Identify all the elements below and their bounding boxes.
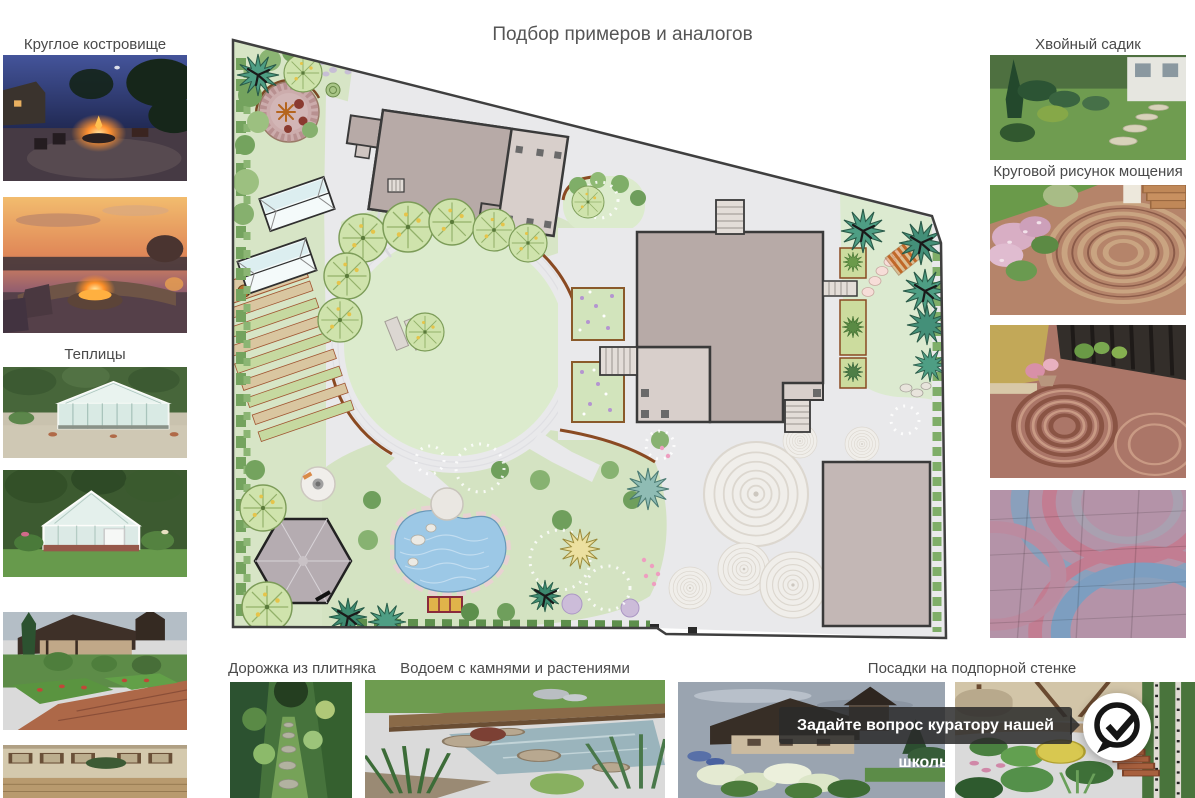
landscape-plan (0, 0, 1195, 798)
chat-button[interactable] (1083, 693, 1151, 761)
plan-top-house-stair (388, 179, 404, 192)
plan-garage (823, 462, 930, 626)
page: Подбор примеров и аналогов Круглое костр… (0, 0, 1195, 798)
plan-lawn-circle (344, 234, 566, 456)
chat-check-icon (1083, 693, 1151, 761)
plan-bench (428, 597, 462, 612)
plan-main-house (637, 232, 823, 422)
chat-tooltip[interactable]: Задайте вопрос куратору нашей школы (779, 707, 1072, 744)
